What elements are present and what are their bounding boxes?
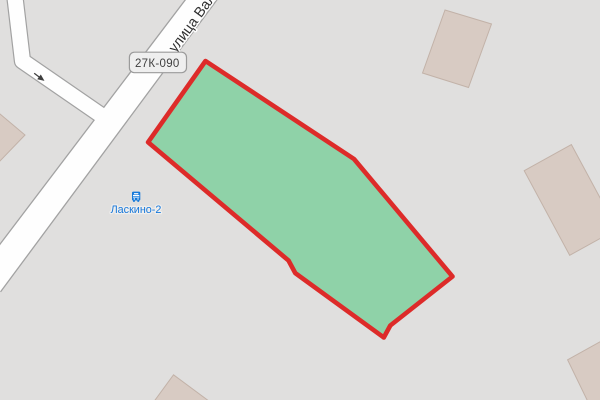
- svg-text:Ласкино-2: Ласкино-2: [111, 204, 162, 216]
- svg-text:27К-090: 27К-090: [135, 58, 180, 70]
